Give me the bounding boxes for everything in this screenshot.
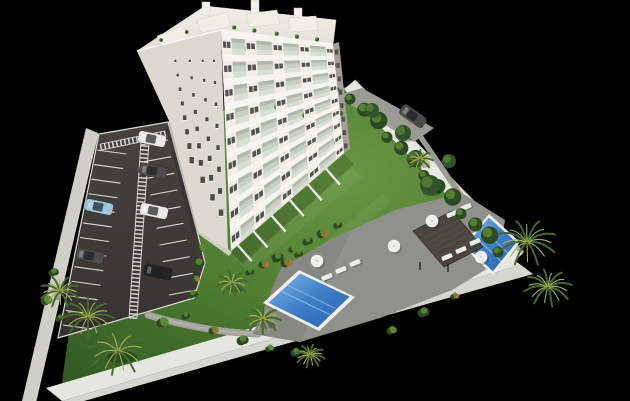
facade-pier [222,62,233,79]
sw-window [215,102,218,106]
roof-terrace-plant [295,35,297,37]
sw-window [196,127,199,132]
pier-window [329,74,332,78]
sw-window [207,137,210,142]
sw-window-sill [198,166,203,167]
pier-window [280,81,284,86]
sw-window-sill [180,106,184,107]
facade-pier [246,61,258,77]
roof-terrace-plant [315,37,317,39]
roof-terrace-plant [159,38,163,42]
sw-window [183,115,186,120]
pier-window [247,43,251,49]
balcony-shade [233,62,247,66]
sw-window [210,194,214,200]
pier-window [303,78,307,83]
sw-window-sill [192,97,195,98]
pier-window [227,138,231,146]
hedge-tree [444,188,461,205]
sw-window-sill [213,62,216,63]
pier-window [231,136,235,144]
sw-window [203,79,205,82]
pier-window [251,43,255,49]
hedge-tree [382,132,393,143]
palm-frond [527,243,528,262]
pier-window [300,47,304,51]
pier-window [305,47,309,51]
pier-window [332,74,335,78]
facade-pier [273,61,285,74]
pier-window [224,66,228,73]
balcony-shade [257,61,273,65]
sw-window [199,160,203,166]
sw-window-sill [188,62,191,63]
pier-window [253,85,257,91]
pier-window [278,45,282,50]
facade-pier [221,37,232,54]
facade-pier [274,78,286,93]
ne-balcony-notch [341,117,344,122]
facade-pier [245,40,257,56]
rendered-scene: Aerial 3D architectural render of a whit… [0,0,630,401]
balcony-shade [284,60,300,63]
sw-window-sill [216,150,220,151]
roof-terrace-plant [232,25,234,27]
facade-pier [300,60,312,71]
pier-window [306,63,310,67]
hedge-tree [481,227,498,244]
sw-window-sill [183,120,187,121]
sw-window [202,60,204,63]
balcony-railing [310,52,326,56]
facade-pier [299,45,311,56]
facade-pier [247,82,259,99]
hedge-tree [468,217,482,231]
sw-window [197,143,201,148]
ne-balcony-notch [344,144,347,149]
sw-window-sill [205,121,209,122]
hedge-tree [394,141,408,155]
sw-window-sill [218,216,223,217]
palm-frond [60,292,61,305]
facade-pier [224,85,235,104]
sw-window [204,98,207,102]
roof-terrace-plant [185,30,189,34]
sw-window-sill [218,194,223,195]
facade-pier [327,60,336,69]
sw-window [174,60,176,63]
sw-window-sill [178,91,181,92]
sw-window-sill [213,84,216,85]
sw-window [201,177,205,183]
ne-balcony-notch [336,63,339,68]
sw-window [209,175,213,181]
balcony-railing [232,49,246,55]
ne-balcony-notch [338,76,341,81]
pier-window [330,49,333,53]
sw-window [216,124,219,128]
sw-window [217,167,221,172]
sw-window-sill [195,131,199,132]
sw-window [181,101,184,105]
sw-window-sill [200,183,205,184]
ne-balcony-notch [339,90,342,95]
sw-window-sill [197,149,201,150]
pier-window [302,63,306,67]
pier-window [279,64,283,69]
penthouse-volume [288,16,318,32]
pier-window [275,64,279,69]
roof-terrace-plant [252,28,254,30]
sw-window [192,93,195,97]
roof-chimney [202,2,210,15]
sw-window [177,74,179,77]
sw-window [216,145,219,150]
hedge-tree [345,94,356,105]
balcony-railing [257,50,273,56]
sw-window-sill [207,161,211,162]
sw-window-sill [206,141,210,142]
sw-window-sill [203,82,206,83]
hedge-tree [456,208,467,219]
sw-window [218,188,222,194]
sw-window-sill [190,79,193,80]
palm-frond [59,280,60,293]
pier-window [248,65,252,71]
sw-window-sill [210,201,215,202]
sw-window-sill [217,172,221,173]
facade-pier [272,42,284,55]
pier-window [255,106,259,113]
sw-window-sill [201,62,204,63]
pier-window [327,49,330,53]
pier-window [249,86,253,92]
pier-window [276,82,280,88]
site-plan-svg [0,0,630,401]
sw-window [219,209,223,215]
sw-window [214,81,216,84]
sw-window [194,110,197,114]
ne-balcony-notch [340,103,343,108]
facade-pier [328,72,337,82]
sw-window [205,117,208,121]
sw-window-sill [189,163,194,164]
sw-window-sill [215,128,219,129]
pier-window [230,113,234,120]
sw-window [208,156,212,161]
sw-window-sill [209,181,214,182]
palm-frond [527,224,528,243]
pier-window [331,62,334,66]
sw-window-sill [176,77,179,78]
roof-terrace-plant [275,32,277,34]
pier-window [226,114,230,121]
pier-window [331,87,334,91]
sw-window-sill [214,106,217,107]
balcony-railing [284,51,300,56]
ne-balcony-notch [343,130,346,135]
facade-pier [225,109,236,129]
sw-window [191,76,193,79]
pier-window [250,107,254,114]
pier-window [228,65,232,72]
sw-window-sill [187,149,192,150]
sw-window [179,88,182,92]
pier-window [252,65,256,71]
pier-window [229,89,233,96]
sw-window [185,129,189,134]
facade-pier [326,47,335,56]
pier-window [328,62,331,66]
ne-balcony-notch [335,50,338,55]
sw-window [190,157,194,163]
pier-window [334,86,337,90]
sw-window-sill [174,62,177,63]
pier-window [307,77,311,82]
sw-window [189,60,191,63]
sw-window [187,143,191,149]
sw-window-sill [185,135,189,136]
sw-window [213,60,215,63]
sw-window-sill [193,114,197,115]
pier-window [274,45,278,50]
sw-window-sill [204,102,207,103]
pier-window [227,42,231,49]
pier-window [225,90,229,97]
pier-window [223,41,227,48]
